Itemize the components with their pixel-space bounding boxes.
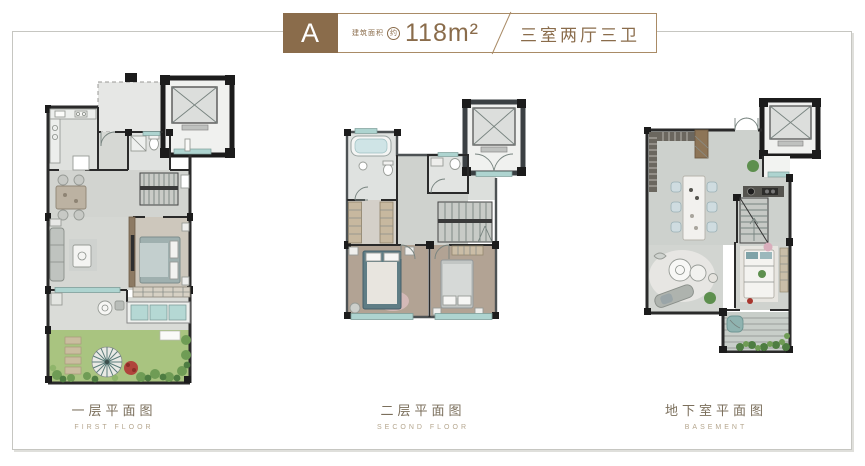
first-floor-title: 一层平面图 [71,400,156,419]
basement-title: 地下室平面图 [665,400,767,419]
divider-slash-icon [492,12,512,54]
area-approx-circle: 约 [387,27,400,40]
header-badge: A 建筑面积 约 118m² 三室两厅三卫 [283,13,657,53]
area-prefix-label: 建筑面积 [352,28,384,38]
first-floor-caption: 一层平面图 FIRST FLOOR [71,400,156,431]
layout-label: 三室两厅三卫 [520,21,640,46]
stairs-icon [740,198,768,243]
elevator-icon [759,98,821,177]
second-floor-caption: 二层平面图 SECOND FLOOR [377,400,469,431]
basement-caption: 地下室平面图 BASEMENT [665,400,767,431]
dining-table [671,176,717,240]
second-floor-plan-drawing [335,98,535,348]
elevator-icon [462,99,526,177]
unit-letter: A [283,13,338,53]
second-floor-title: 二层平面图 [377,400,469,419]
entry-door-icon [735,118,758,130]
parasol-icon [92,347,122,377]
wardrobe [133,287,190,297]
basement-subtitle: BASEMENT [665,424,767,431]
second-floor-subtitle: SECOND FLOOR [377,424,469,431]
basement-plan-drawing [640,98,825,353]
unit-info-box: 建筑面积 约 118m² 三室两厅三卫 [338,13,657,53]
first-floor-subtitle: FIRST FLOOR [71,424,156,431]
area-value: 118m² [405,21,479,46]
first-floor-plan-drawing [45,65,237,390]
elevator-icon [160,75,235,158]
brochure-page: A 建筑面积 约 118m² 三室两厅三卫 [0,0,865,466]
